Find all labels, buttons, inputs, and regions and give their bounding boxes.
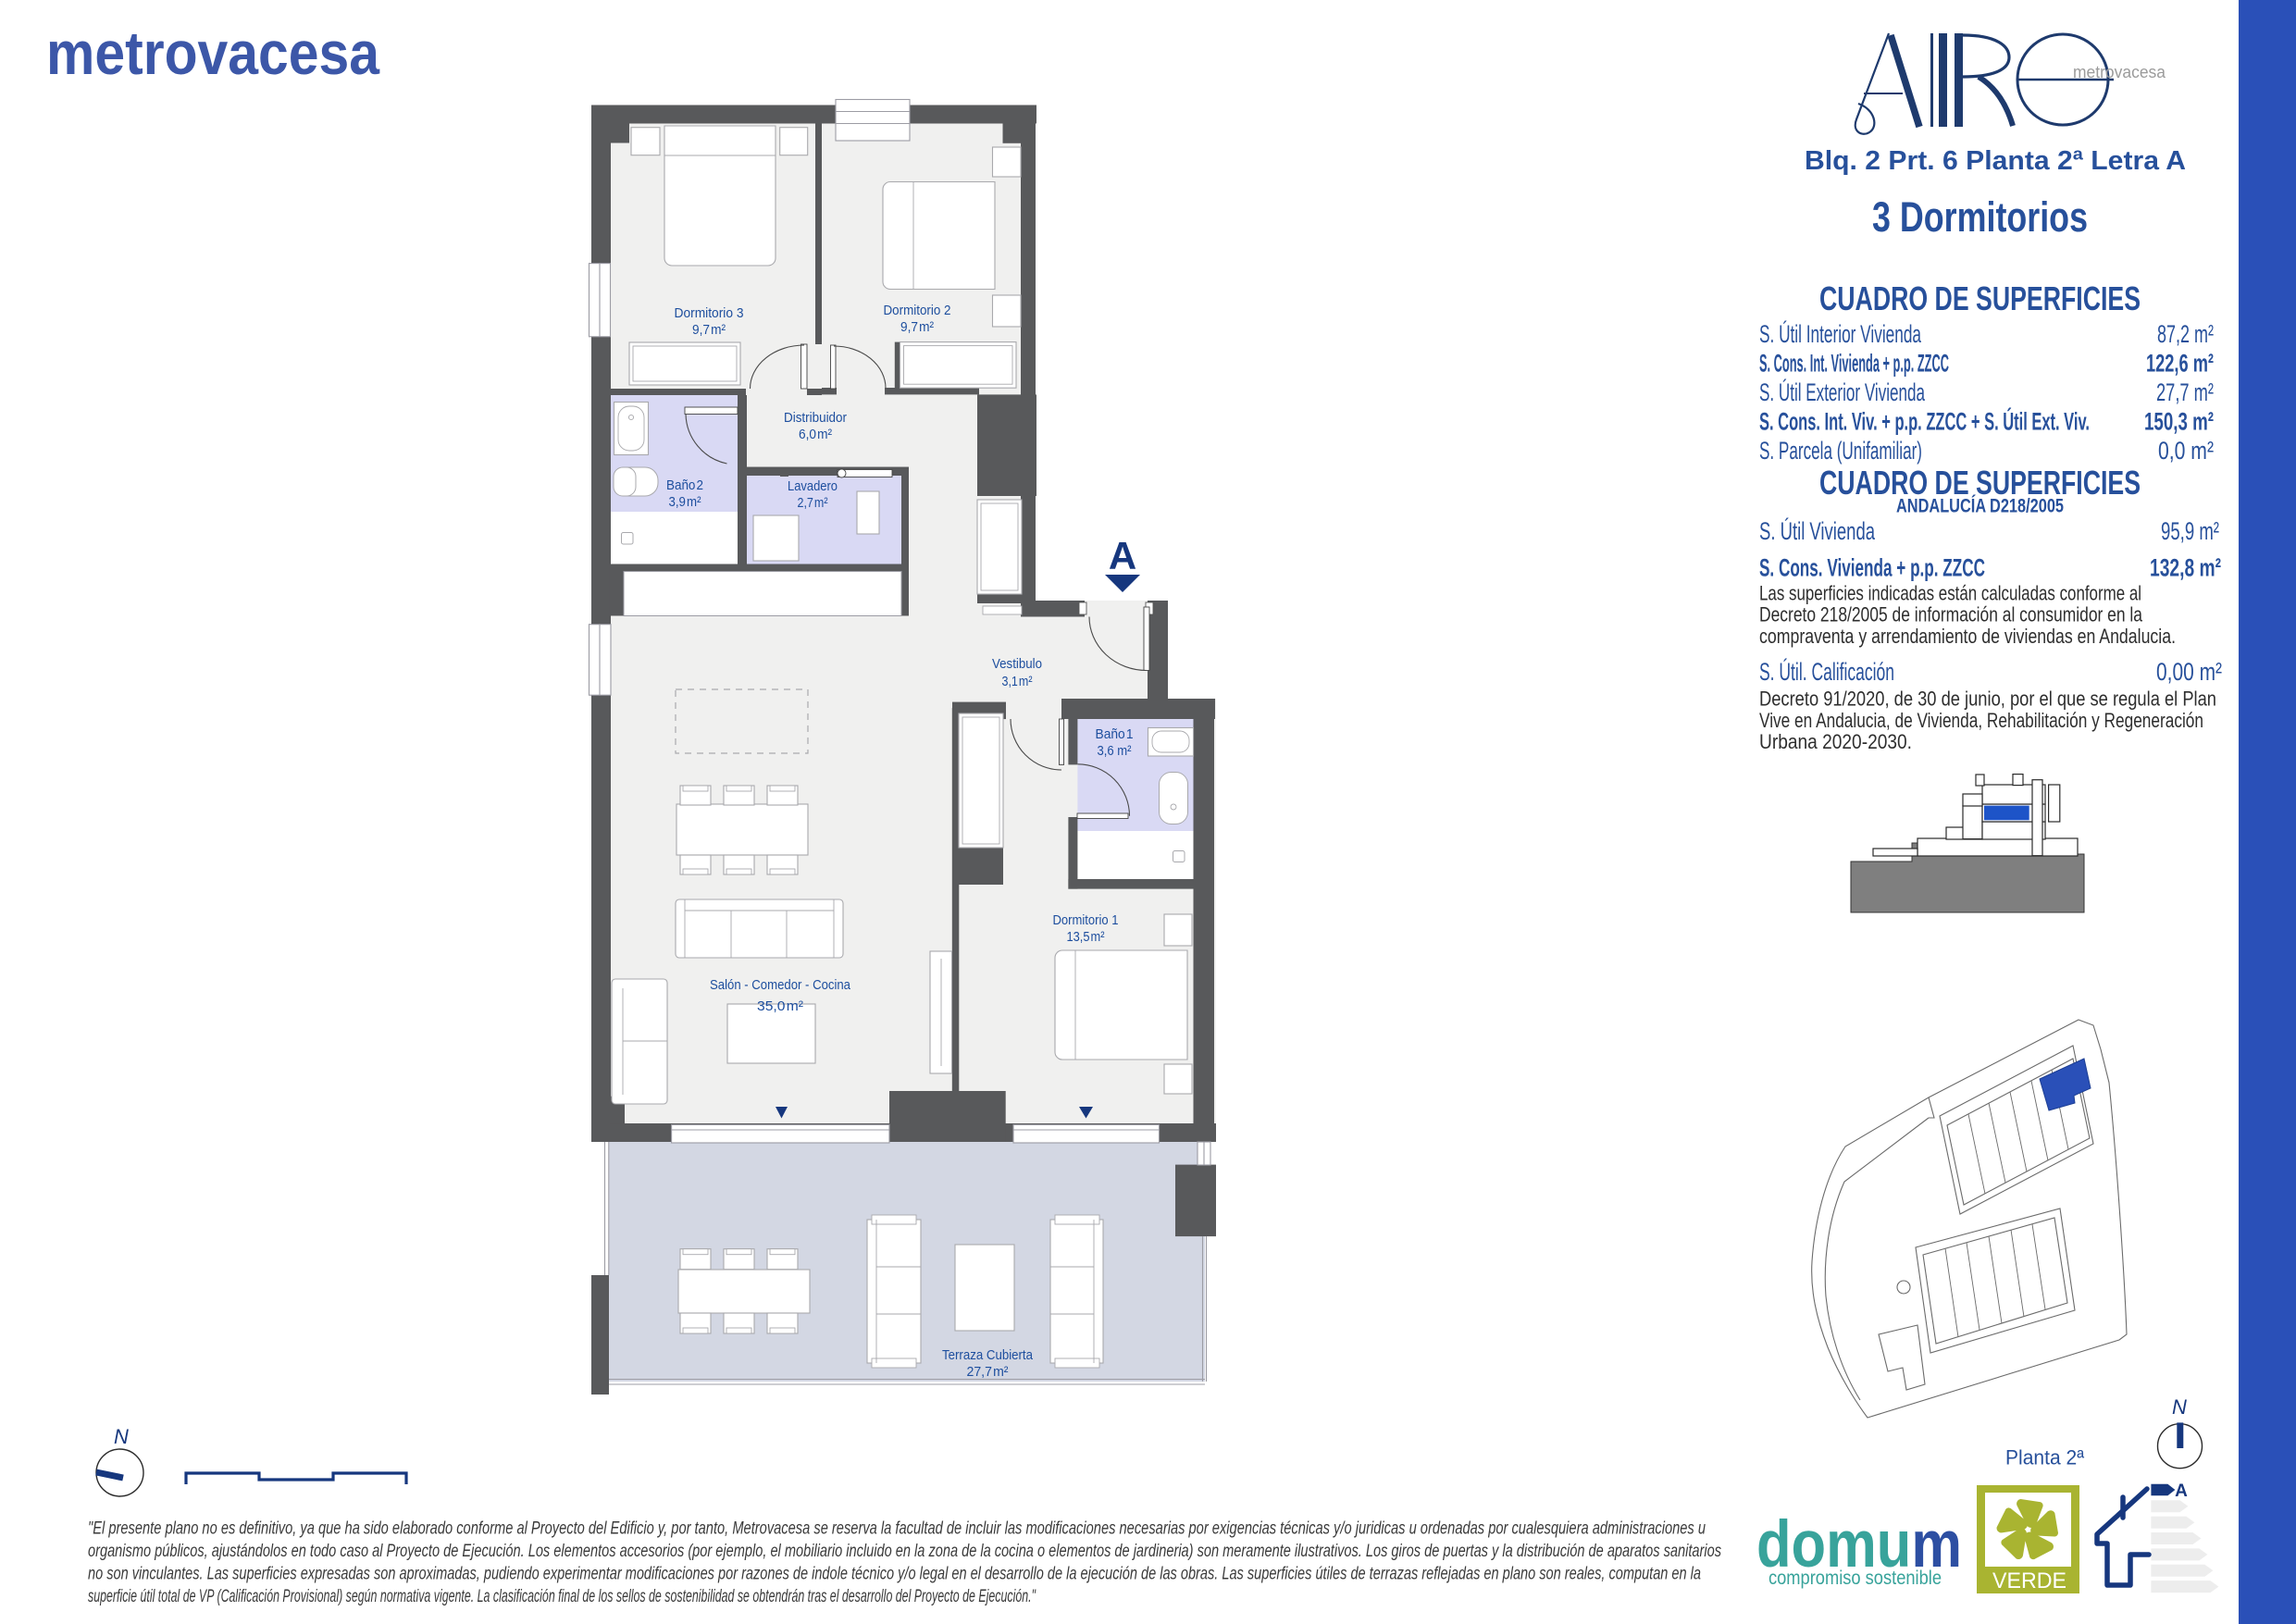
svg-text:87,2 m²: 87,2 m² xyxy=(2157,320,2214,348)
svg-text:3,9 m²: 3,9 m² xyxy=(669,494,701,510)
svg-text:compromiso sostenible: compromiso sostenible xyxy=(1769,1568,1942,1589)
svg-text:132,8 m²: 132,8 m² xyxy=(2150,554,2221,582)
svg-text:2,7 m²: 2,7 m² xyxy=(798,495,828,511)
svg-text:Salón - Comedor - Cocina: Salón - Comedor - Cocina xyxy=(710,977,850,993)
svg-text:Vive en Andalucia, de Vivienda: Vive en Andalucia, de Vivienda, Rehabili… xyxy=(1759,709,2203,732)
svg-text:S. Útil Vivienda: S. Útil Vivienda xyxy=(1759,516,1876,545)
svg-text:S. Cons. Vivienda + p.p. ZZCC: S. Cons. Vivienda + p.p. ZZCC xyxy=(1759,554,1985,582)
svg-text:Planta 2ª: Planta 2ª xyxy=(2005,1446,2085,1469)
svg-text:CUADRO DE SUPERFICIES: CUADRO DE SUPERFICIES xyxy=(1819,279,2141,317)
svg-text:S. Cons. Int. Viv. + p.p. ZZCC: S. Cons. Int. Viv. + p.p. ZZCC + S. Útil… xyxy=(1759,407,2090,436)
svg-text:150,3 m²: 150,3 m² xyxy=(2144,408,2214,436)
svg-text:0,0 m²: 0,0 m² xyxy=(2158,437,2214,465)
svg-text:Las superficies indicadas está: Las superficies indicadas están calculad… xyxy=(1759,582,2141,605)
svg-text:95,9 m²: 95,9 m² xyxy=(2161,517,2219,545)
svg-text:metrovacesa: metrovacesa xyxy=(2073,63,2166,81)
svg-text:Dormitorio 2: Dormitorio 2 xyxy=(884,303,951,318)
svg-text:3 Dormitorios: 3 Dormitorios xyxy=(1872,193,2088,241)
svg-text:27,7 m²: 27,7 m² xyxy=(967,1364,1009,1380)
svg-text:A: A xyxy=(2175,1481,2188,1501)
svg-text:3,6 m²: 3,6 m² xyxy=(1098,743,1132,759)
svg-text:Dormitorio 1: Dormitorio 1 xyxy=(1053,912,1119,928)
svg-text:9,7 m²: 9,7 m² xyxy=(692,322,726,338)
svg-text:S. Útil Exterior Vivienda: S. Útil Exterior Vivienda xyxy=(1759,378,1926,406)
svg-text:superficie útil total de VP (C: superficie útil total de VP (Calificació… xyxy=(88,1586,1036,1606)
svg-text:9,7 m²: 9,7 m² xyxy=(900,319,934,335)
svg-text:Terraza Cubierta: Terraza Cubierta xyxy=(942,1347,1033,1363)
svg-text:VERDE: VERDE xyxy=(1992,1568,2066,1593)
svg-text:A: A xyxy=(1109,534,1136,577)
svg-text:S. Útil. Calificación: S. Útil. Calificación xyxy=(1759,657,1894,686)
svg-text:27,7 m²: 27,7 m² xyxy=(2156,378,2214,406)
svg-text:6,0 m²: 6,0 m² xyxy=(799,427,832,442)
svg-text:Lavadero: Lavadero xyxy=(788,478,838,494)
svg-text:35,0 m²: 35,0 m² xyxy=(757,998,803,1014)
svg-text:S. Parcela (Unifamiliar): S. Parcela (Unifamiliar) xyxy=(1759,437,1922,465)
svg-text:metrovacesa: metrovacesa xyxy=(46,19,380,87)
svg-text:Dormitorio 3: Dormitorio 3 xyxy=(675,305,744,321)
svg-text:122,6 m²: 122,6 m² xyxy=(2146,350,2214,378)
svg-text:Decreto 91/2020, de 30 de juni: Decreto 91/2020, de 30 de junio, por el … xyxy=(1759,688,2216,711)
svg-text:0,00 m²: 0,00 m² xyxy=(2156,658,2222,686)
svg-text:Baño 1: Baño 1 xyxy=(1096,726,1134,742)
svg-text:Urbana 2020-2030.: Urbana 2020-2030. xyxy=(1759,730,1912,753)
svg-text:compraventa y arrendamiento de: compraventa y arrendamiento de viviendas… xyxy=(1759,625,2176,648)
svg-text:Vestibulo: Vestibulo xyxy=(992,656,1042,672)
svg-text:N: N xyxy=(2172,1395,2187,1419)
svg-text:no son vinculantes. Las superf: no son vinculantes. Las superficies expr… xyxy=(88,1563,1701,1583)
svg-text:S. Útil Interior Vivienda: S. Útil Interior Vivienda xyxy=(1759,319,1922,348)
svg-text:ANDALUCÍA D218/2005: ANDALUCÍA D218/2005 xyxy=(1896,496,2064,517)
svg-text:13,5 m²: 13,5 m² xyxy=(1067,929,1105,945)
svg-text:Baño 2: Baño 2 xyxy=(666,477,703,493)
svg-text:S. Cons. Int. Vivienda + p.p.: S. Cons. Int. Vivienda + p.p. ZZCC xyxy=(1759,350,1949,378)
svg-text:"El presente plano no es defin: "El presente plano no es definitivo, ya … xyxy=(88,1519,1706,1539)
svg-text:Decreto 218/2005 de informació: Decreto 218/2005 de información al consu… xyxy=(1759,603,2142,626)
svg-text:Distribuidor: Distribuidor xyxy=(784,410,847,426)
svg-text:3,1 m²: 3,1 m² xyxy=(1002,674,1033,689)
svg-text:organismo públicos, ajustándol: organismo públicos, ajustándolos en todo… xyxy=(88,1541,1721,1561)
svg-text:N: N xyxy=(114,1425,129,1448)
svg-text:Blq. 2 Prt. 6 Planta 2ª Letra: Blq. 2 Prt. 6 Planta 2ª Letra A xyxy=(1805,146,2186,176)
